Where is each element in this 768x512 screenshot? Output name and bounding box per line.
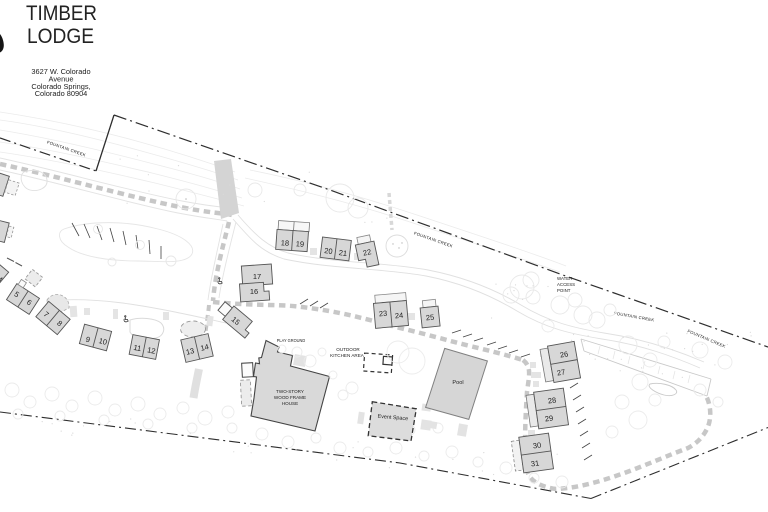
svg-text:30: 30: [532, 440, 542, 450]
svg-text:HOUSE: HOUSE: [282, 401, 298, 406]
svg-text:27: 27: [556, 367, 566, 377]
svg-text:23: 23: [378, 309, 387, 319]
svg-text:Pool: Pool: [452, 380, 463, 386]
svg-text:28: 28: [547, 395, 557, 405]
svg-text:24: 24: [394, 311, 403, 321]
svg-text:ACCESS: ACCESS: [557, 282, 575, 287]
svg-text:TWO-STORY: TWO-STORY: [276, 389, 304, 394]
svg-text:KITCHEN AREA: KITCHEN AREA: [330, 353, 365, 358]
svg-text:18: 18: [280, 238, 289, 248]
svg-text:WATER: WATER: [557, 276, 572, 281]
svg-text:WOOD FRAME: WOOD FRAME: [274, 395, 306, 400]
svg-text:31: 31: [530, 458, 540, 468]
svg-text:OUTDOOR: OUTDOOR: [336, 347, 360, 352]
svg-text:17: 17: [253, 272, 261, 281]
svg-text:POINT: POINT: [557, 288, 571, 293]
svg-text:25: 25: [425, 313, 434, 323]
svg-text:PLAY GROUND: PLAY GROUND: [277, 338, 306, 344]
svg-text:Colorado 80904: Colorado 80904: [35, 89, 88, 98]
svg-text:20: 20: [324, 246, 333, 256]
svg-text:26: 26: [559, 349, 569, 359]
svg-text:19: 19: [295, 239, 304, 249]
svg-text:LODGE: LODGE: [27, 24, 94, 48]
svg-text:21: 21: [338, 248, 347, 258]
svg-text:12: 12: [146, 345, 156, 355]
svg-text:TIMBER: TIMBER: [26, 1, 97, 25]
svg-text:29: 29: [544, 413, 554, 423]
svg-text:16: 16: [250, 287, 258, 296]
